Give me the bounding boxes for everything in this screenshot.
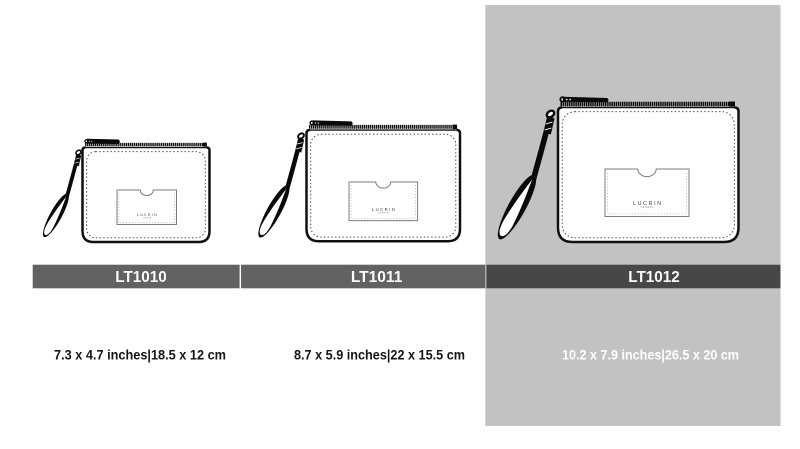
- svg-text:GENEVA: GENEVA: [142, 216, 152, 219]
- svg-text:10.2 x 7.9 inches|26.5 x 20 cm: 10.2 x 7.9 inches|26.5 x 20 cm: [562, 346, 739, 362]
- svg-text:LT1011: LT1011: [351, 269, 403, 286]
- svg-text:LUCRIN: LUCRIN: [372, 207, 396, 212]
- svg-text:7.3 x 4.7 inches|18.5 x 12 cm: 7.3 x 4.7 inches|18.5 x 12 cm: [54, 346, 226, 362]
- svg-text:8.7 x 5.9 inches|22 x 15.5 cm: 8.7 x 5.9 inches|22 x 15.5 cm: [294, 346, 465, 362]
- svg-text:LT1012: LT1012: [628, 269, 680, 286]
- svg-text:GENEVA: GENEVA: [641, 206, 654, 209]
- svg-text:LT1010: LT1010: [115, 269, 167, 286]
- svg-text:LUCRIN: LUCRIN: [137, 213, 158, 217]
- svg-text:GENEVA: GENEVA: [378, 212, 389, 215]
